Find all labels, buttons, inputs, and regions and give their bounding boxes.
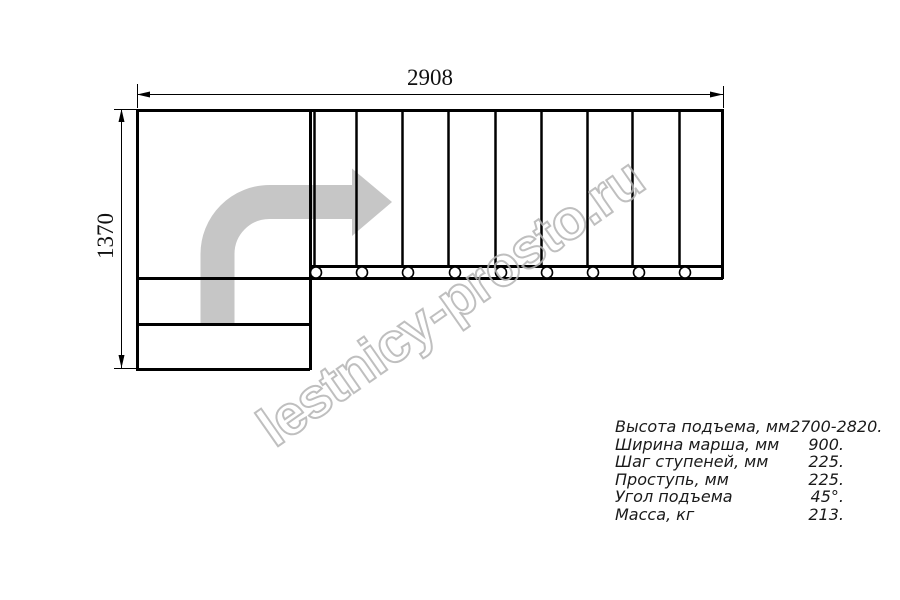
spec-label: Шаг ступеней, мм — [615, 453, 768, 471]
width-dimension-label: 2908 — [407, 65, 453, 91]
spec-table: Высота подъема, мм2700-2820.Ширина марша… — [615, 418, 844, 524]
fastener-circle — [634, 267, 645, 278]
spec-value: 45°. — [811, 488, 844, 506]
spec-row: Ширина марша, мм900. — [615, 436, 844, 454]
stair-plan-page: 2908 1370 lestnicy-prosto.ru Высота подъ… — [0, 0, 900, 600]
spec-value: 225. — [808, 453, 844, 471]
spec-label: Высота подъема, мм — [615, 418, 790, 436]
spec-row: Проступь, мм225. — [615, 471, 844, 489]
fastener-circle — [357, 267, 368, 278]
height-dimension-label: 1370 — [93, 213, 119, 259]
direction-arrow — [218, 169, 393, 327]
spec-label: Ширина марша, мм — [615, 436, 779, 454]
spec-value: 225. — [808, 471, 844, 489]
spec-row: Угол подъема45°. — [615, 488, 844, 506]
spec-row: Масса, кг213. — [615, 506, 844, 524]
spec-value: 900. — [808, 436, 844, 454]
spec-row: Высота подъема, мм2700-2820. — [615, 418, 844, 436]
spec-value: 213. — [808, 506, 844, 524]
spec-label: Проступь, мм — [615, 471, 729, 489]
spec-label: Масса, кг — [615, 506, 694, 524]
fastener-circle — [680, 267, 691, 278]
fastener-circle — [588, 267, 599, 278]
spec-label: Угол подъема — [615, 488, 733, 506]
spec-row: Шаг ступеней, мм225. — [615, 453, 844, 471]
fastener-circle — [403, 267, 414, 278]
fastener-circle — [311, 267, 322, 278]
spec-value: 2700-2820. — [790, 418, 882, 436]
